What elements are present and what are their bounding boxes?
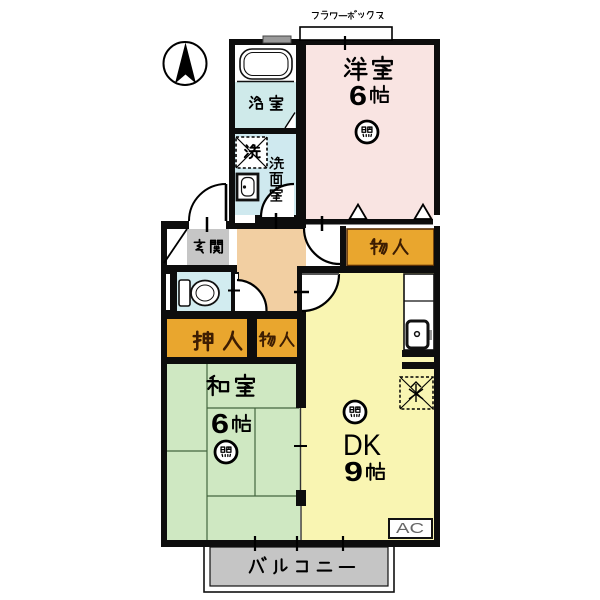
svg-text:6: 6 [211, 408, 229, 439]
svg-text:AC: AC [396, 520, 424, 537]
svg-text:9: 9 [344, 456, 363, 487]
svg-text:6: 6 [349, 80, 367, 111]
